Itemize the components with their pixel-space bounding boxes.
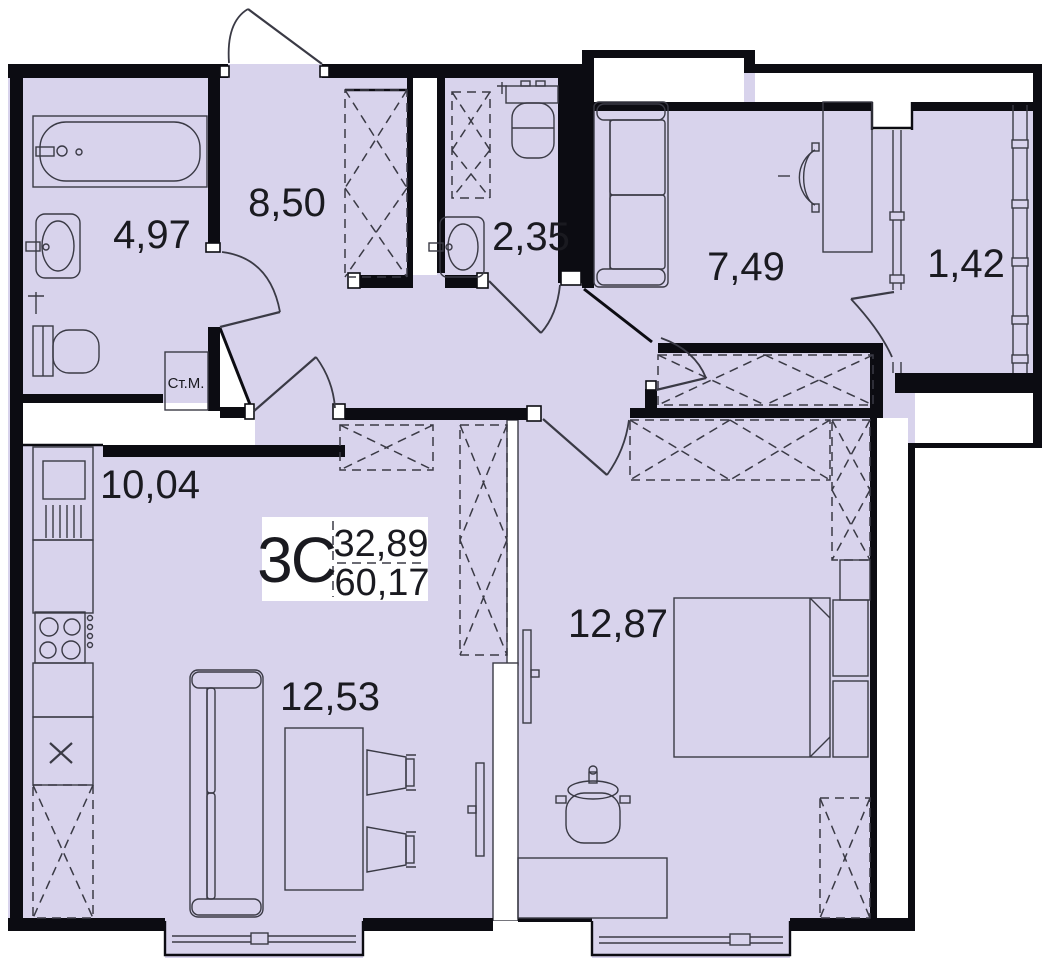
wc-area-label: 2,35 bbox=[492, 215, 570, 259]
living-area-total-label: 32,89 bbox=[333, 523, 428, 565]
floorplan-page: Ст.М. bbox=[0, 0, 1048, 960]
entrance-door-icon bbox=[229, 9, 322, 64]
washing-machine-label: Ст.М. bbox=[168, 375, 205, 392]
bedroom-area-label: 12,87 bbox=[568, 602, 668, 646]
living-area-label: 12,53 bbox=[280, 675, 380, 719]
total-area-label: 60,17 bbox=[334, 562, 429, 604]
kitchen-area-label: 10,04 bbox=[100, 463, 200, 507]
apartment-stamp: 3C 32,89 60,17 bbox=[257, 517, 429, 604]
balcony-area-label: 1,42 bbox=[927, 242, 1005, 286]
study-area-label: 7,49 bbox=[707, 245, 785, 289]
floorplan-drawing: Ст.М. bbox=[0, 0, 1048, 960]
bathroom-area-label: 4,97 bbox=[113, 213, 191, 257]
hall-area-label: 8,50 bbox=[248, 181, 326, 225]
apartment-type-label: 3C bbox=[257, 524, 335, 596]
